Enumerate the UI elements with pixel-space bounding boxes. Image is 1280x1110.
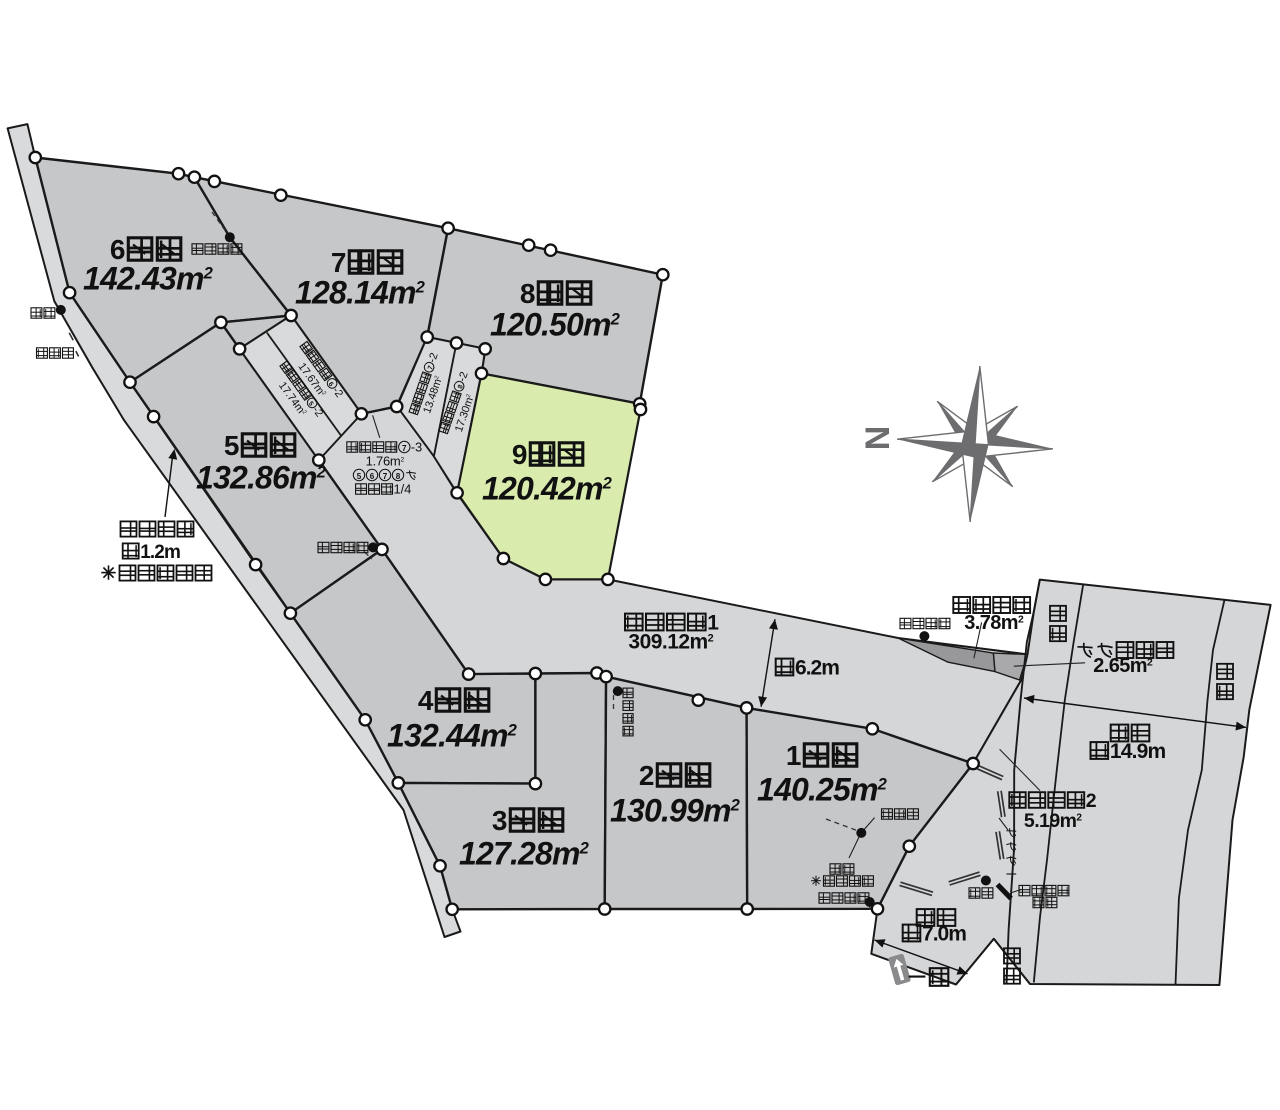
svg-text:7.0m: 7.0m	[922, 923, 967, 946]
svg-text:4: 4	[418, 685, 434, 716]
svg-text:5: 5	[357, 472, 362, 481]
svg-text:5: 5	[224, 430, 240, 461]
svg-text:7: 7	[331, 247, 347, 278]
svg-text:1.76m2: 1.76m2	[366, 454, 405, 469]
svg-text:14.9m: 14.9m	[1110, 740, 1166, 763]
svg-text:2: 2	[639, 760, 655, 791]
svg-text:7: 7	[402, 444, 407, 453]
svg-text:7: 7	[383, 472, 388, 481]
svg-text:N: N	[859, 426, 897, 451]
svg-text:130.99m2: 130.99m2	[610, 793, 741, 829]
svg-text:2: 2	[1086, 790, 1097, 812]
svg-text:-3: -3	[411, 440, 422, 455]
svg-text:309.12m2: 309.12m2	[628, 631, 713, 654]
svg-text:8: 8	[396, 472, 401, 481]
svg-text:9: 9	[512, 439, 528, 470]
svg-text:3.78m2: 3.78m2	[964, 612, 1024, 634]
svg-text:132.86m2: 132.86m2	[196, 460, 327, 496]
svg-text:142.43m2: 142.43m2	[83, 261, 214, 297]
svg-text:127.28m2: 127.28m2	[459, 836, 590, 872]
svg-text:3: 3	[492, 805, 508, 836]
svg-text:8: 8	[520, 278, 536, 309]
svg-text:2.65m2: 2.65m2	[1093, 655, 1153, 677]
svg-text:140.25m2: 140.25m2	[757, 772, 888, 808]
svg-text:1/4: 1/4	[394, 482, 412, 497]
svg-text:120.50m2: 120.50m2	[490, 307, 621, 343]
svg-text:6.2m: 6.2m	[795, 657, 840, 680]
svg-text:132.44m2: 132.44m2	[387, 718, 518, 754]
svg-text:1.2m: 1.2m	[140, 542, 181, 563]
svg-text:5.19m2: 5.19m2	[1024, 810, 1082, 832]
svg-text:6: 6	[370, 472, 375, 481]
svg-text:1: 1	[786, 740, 802, 771]
svg-text:120.42m2: 120.42m2	[482, 471, 613, 507]
svg-text:128.14m2: 128.14m2	[295, 275, 426, 311]
svg-text:1: 1	[707, 612, 719, 635]
